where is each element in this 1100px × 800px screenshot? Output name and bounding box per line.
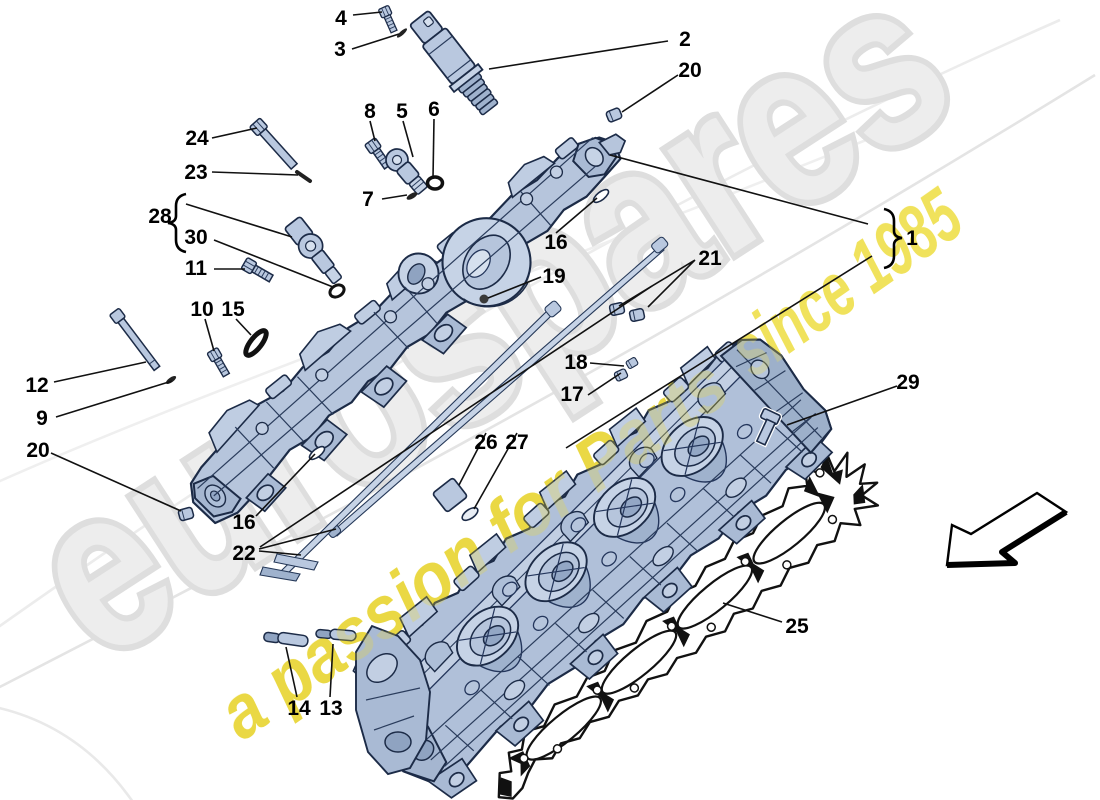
svg-text:24: 24 [185, 127, 209, 150]
svg-text:7: 7 [362, 188, 374, 211]
svg-text:26: 26 [474, 431, 497, 454]
svg-text:12: 12 [25, 374, 48, 397]
svg-text:2: 2 [679, 28, 691, 51]
svg-text:22: 22 [232, 542, 255, 565]
svg-text:11: 11 [185, 257, 208, 280]
svg-text:16: 16 [544, 231, 567, 254]
svg-text:17: 17 [560, 383, 583, 406]
svg-text:18: 18 [564, 351, 588, 374]
svg-text:23: 23 [184, 161, 207, 184]
svg-text:19: 19 [542, 265, 565, 288]
svg-text:6: 6 [428, 98, 440, 121]
svg-text:15: 15 [221, 298, 245, 321]
svg-text:10: 10 [190, 298, 213, 321]
svg-text:29: 29 [896, 371, 919, 394]
svg-text:25: 25 [785, 615, 809, 638]
svg-text:14: 14 [287, 697, 311, 720]
svg-text:13: 13 [319, 697, 342, 720]
svg-text:8: 8 [364, 100, 376, 123]
svg-text:28: 28 [148, 205, 172, 228]
svg-text:27: 27 [505, 431, 528, 454]
svg-text:21: 21 [698, 247, 722, 270]
svg-text:5: 5 [396, 100, 408, 123]
svg-text:20: 20 [678, 59, 701, 82]
svg-text:3: 3 [334, 38, 346, 61]
svg-text:4: 4 [335, 7, 347, 30]
svg-text:16: 16 [232, 511, 255, 534]
svg-text:30: 30 [184, 226, 207, 249]
svg-text:20: 20 [26, 439, 49, 462]
svg-text:1: 1 [906, 227, 918, 250]
svg-text:9: 9 [36, 407, 48, 430]
